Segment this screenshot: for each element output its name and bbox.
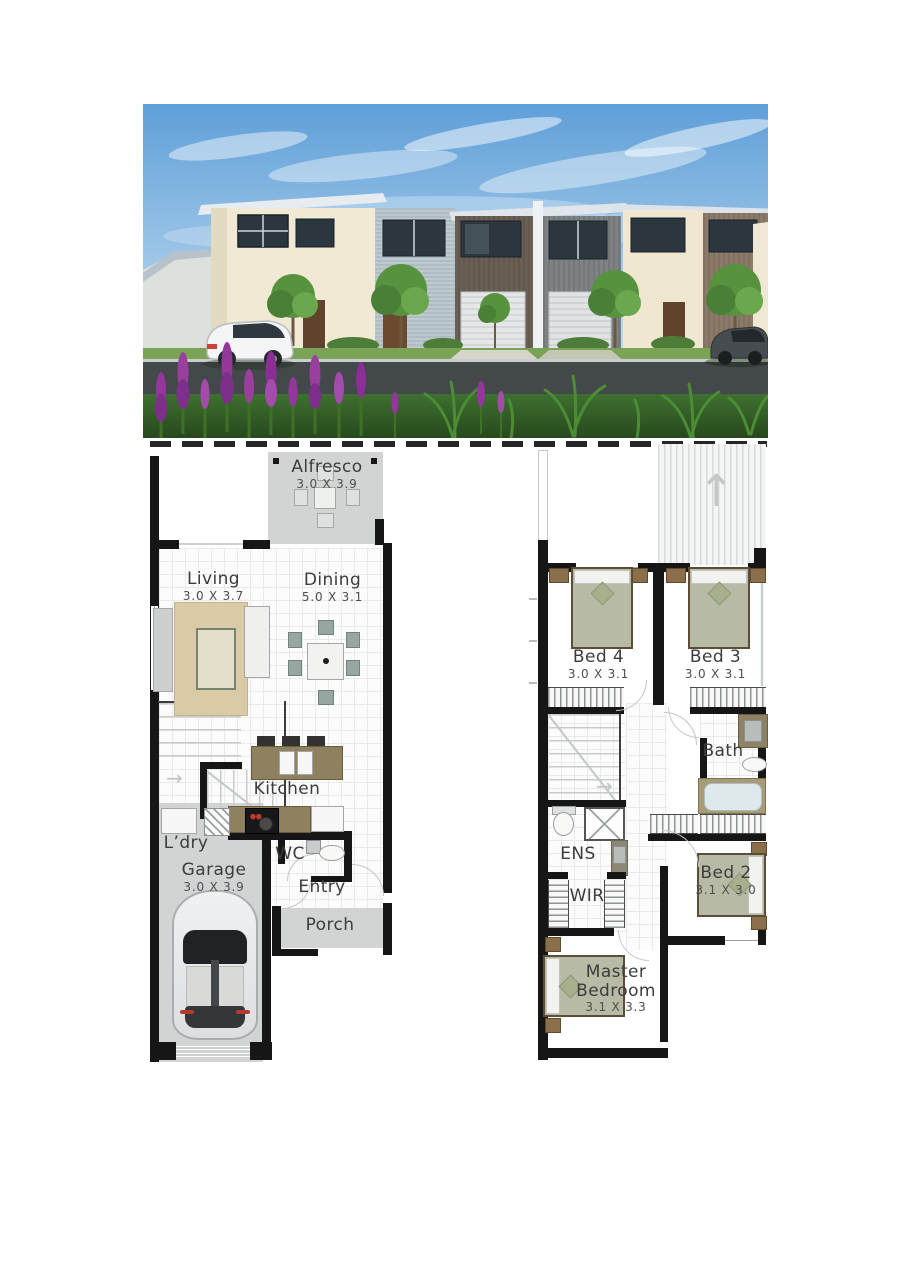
window (760, 578, 764, 686)
listing-page: → (0, 0, 900, 1274)
wall (758, 930, 766, 945)
room-label-master: Master Bedroom 3.1 X 3.3 (568, 963, 664, 1015)
bathtub (704, 783, 762, 811)
robe-bed3 (690, 687, 766, 709)
room-label-bath: Bath (692, 742, 754, 761)
first-floor-plan: ↑ → (0, 0, 900, 1274)
room-label-ens: ENS (549, 845, 607, 864)
wall (548, 928, 614, 936)
party-wall-outline (538, 450, 548, 542)
room-label-bed3: Bed 3 3.0 X 3.1 (673, 648, 758, 681)
bath-basin (744, 720, 762, 742)
bedside-table (632, 568, 648, 583)
wall (607, 872, 626, 879)
robe-bed4 (548, 687, 624, 709)
room-label-bed2: Bed 2 3.1 X 3.0 (686, 864, 766, 897)
wall (548, 707, 624, 714)
wall (653, 563, 664, 705)
wall (667, 936, 725, 945)
wall (548, 872, 568, 879)
sill-tick (529, 640, 537, 642)
toilet (553, 812, 574, 836)
ens-basin (613, 846, 626, 864)
sill-tick (529, 682, 537, 684)
bedside-table (549, 568, 569, 583)
roof-direction-arrow-icon: ↑ (698, 470, 735, 514)
bedside-table (545, 937, 561, 952)
bedside-table (545, 1018, 561, 1033)
wall (690, 707, 766, 714)
linen-cupboard (700, 814, 766, 834)
room-label-bed4: Bed 4 3.0 X 3.1 (556, 648, 641, 681)
wall (538, 1048, 668, 1058)
bedside-table (666, 568, 686, 583)
stair-direction-arrow-icon: → (596, 776, 613, 796)
stair-edge (619, 714, 621, 804)
sill-tick (529, 598, 537, 600)
shower (584, 807, 625, 841)
room-label-wir: WIR (553, 887, 621, 906)
bedside-table (750, 568, 766, 583)
bedside-table (751, 916, 767, 930)
